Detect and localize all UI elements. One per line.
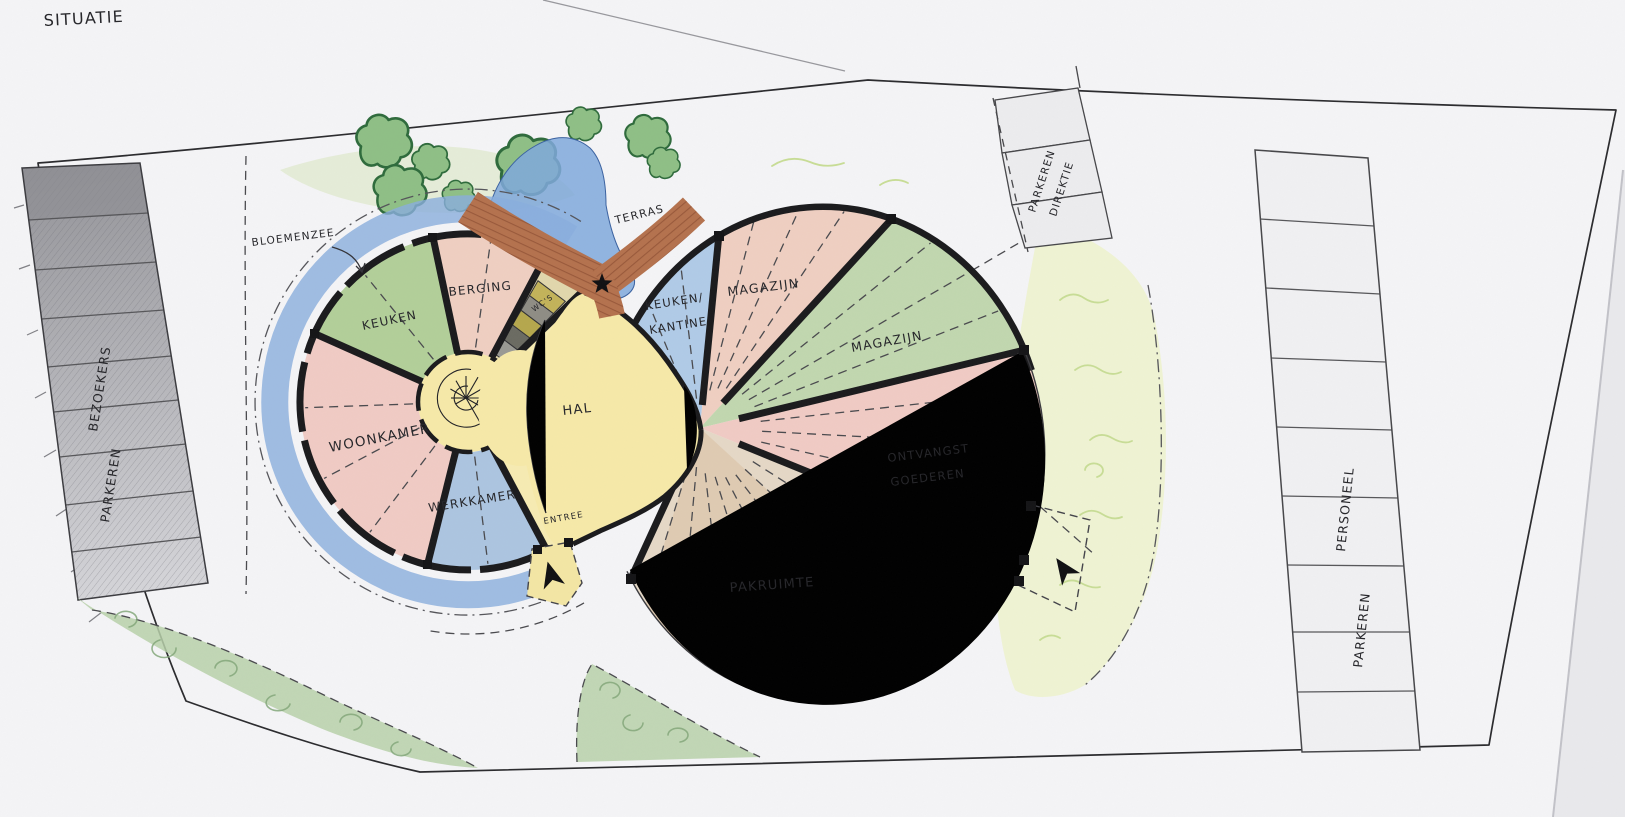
site-plan-drawing: SITUATIE BLOEMENZEE KEUKEN BERGING WC'S … xyxy=(0,0,1625,817)
site-plan-sheet: SITUATIE BLOEMENZEE KEUKEN BERGING WC'S … xyxy=(0,0,1625,817)
label-hal: HAL xyxy=(562,401,593,419)
door-post xyxy=(1014,576,1024,586)
door-post xyxy=(1026,501,1036,511)
door-post xyxy=(564,538,573,547)
parking-visitors-dark-cell xyxy=(22,163,148,220)
door-post xyxy=(533,545,542,554)
